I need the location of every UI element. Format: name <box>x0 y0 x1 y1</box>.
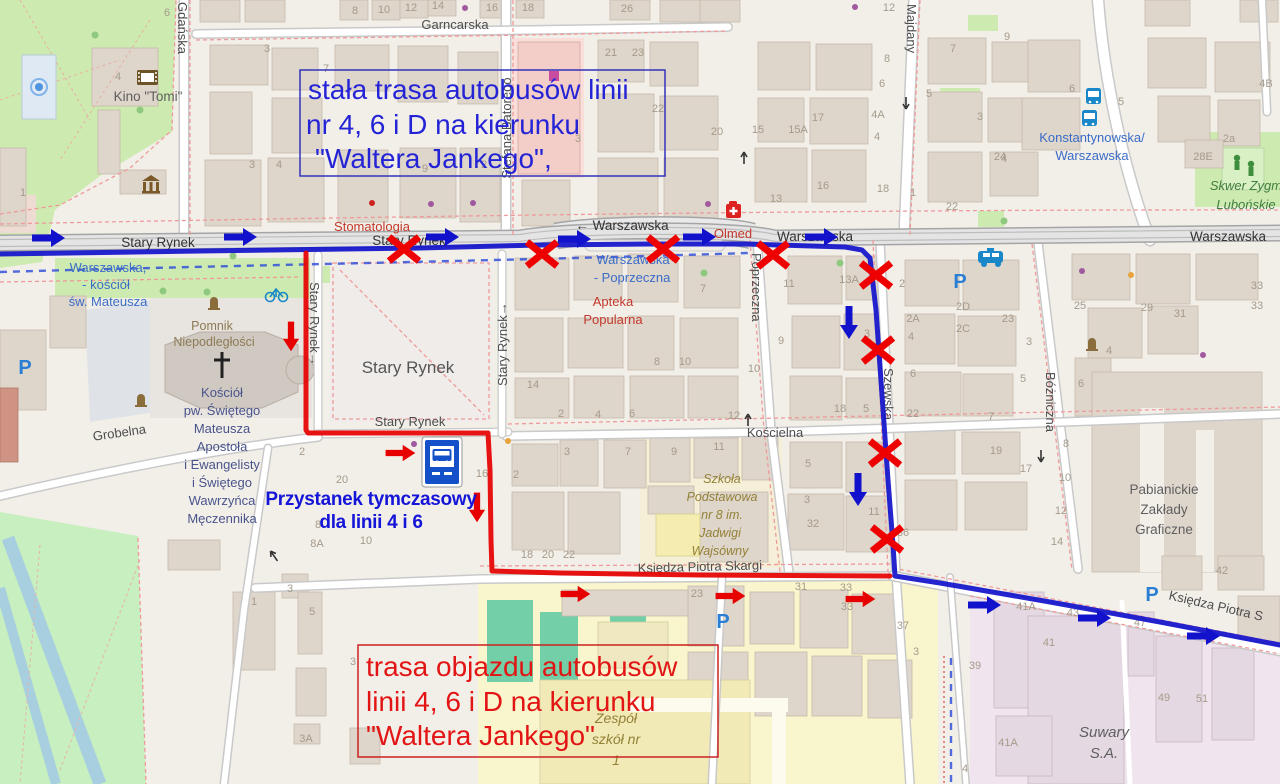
house-number: 25 <box>1074 300 1086 312</box>
parking-icon: P <box>1145 584 1158 606</box>
house-number: 22 <box>652 103 664 115</box>
house-number: 3 <box>350 656 356 668</box>
house-number: 33 <box>840 582 852 594</box>
house-number: 3 <box>1026 336 1032 348</box>
svg-text:linii 4, 6 i D na kierunku: linii 4, 6 i D na kierunku <box>366 686 655 717</box>
fountain-icon <box>22 55 56 119</box>
house-number: 2 <box>513 469 519 481</box>
svg-text:Męczennika: Męczennika <box>187 511 257 526</box>
house-number: 8 <box>352 5 358 17</box>
printing-works-building <box>1092 372 1262 572</box>
house-number: 7 <box>950 43 956 55</box>
fixed-route-note-line: stała trasa autobusów linii <box>308 74 629 105</box>
house-number: 9 <box>778 335 784 347</box>
house-number: 23 <box>1002 313 1014 325</box>
house-number: 26 <box>621 3 633 15</box>
poi-skwer: Skwer Zygm <box>1210 178 1280 193</box>
svg-text:Apostoła: Apostoła <box>197 439 248 454</box>
house-number: 5 <box>1118 96 1124 108</box>
house-number: 20 <box>711 126 723 138</box>
street-stary-rynek-south: Stary Rynek <box>375 414 446 429</box>
house-number: 33 <box>841 601 853 613</box>
parking-icon: P <box>18 357 31 379</box>
house-number: 2 <box>558 408 564 420</box>
house-number: 15A <box>788 124 808 136</box>
svg-text:"Waltera Jankego",: "Waltera Jankego", <box>315 143 552 174</box>
house-number: 18 <box>877 183 889 195</box>
house-number: 4 <box>874 131 880 143</box>
parking-icon: P <box>716 611 729 633</box>
svg-text:pw. Świętego: pw. Świętego <box>184 403 261 418</box>
house-number: 20 <box>542 549 554 561</box>
house-number: 18 <box>522 2 534 14</box>
house-number: 41 <box>1043 637 1055 649</box>
house-number: 6 <box>910 368 916 380</box>
house-number: 6 <box>1078 378 1084 390</box>
house-number: 3 <box>287 583 293 595</box>
svg-text:1: 1 <box>612 752 620 768</box>
poi-apteka: Apteka <box>593 294 634 309</box>
house-number: 29 <box>1141 302 1153 314</box>
house-number: 10 <box>378 4 390 16</box>
house-number: 22 <box>946 201 958 213</box>
map-canvas: Garncarska Gdańska Stefana Batorego Majd… <box>0 0 1280 784</box>
house-number: 23 <box>691 588 703 600</box>
svg-text:Zakłady: Zakłady <box>1140 502 1188 517</box>
house-number: 16 <box>486 2 498 14</box>
house-number: 42 <box>1216 565 1228 577</box>
svg-text:szkół nr: szkół nr <box>592 731 642 747</box>
street-warszawska-westbound: ← Warszawska <box>575 218 669 233</box>
house-number: 6 <box>629 408 635 420</box>
svg-text:dla linii 4 i 6: dla linii 4 i 6 <box>319 512 422 533</box>
house-number: 12 <box>1055 505 1067 517</box>
svg-text:nr 4, 6 i D na kierunku: nr 4, 6 i D na kierunku <box>306 109 580 140</box>
house-number: 1 <box>910 187 916 199</box>
house-number: 9 <box>671 446 677 458</box>
street-koscielna: Kościelna <box>747 425 804 440</box>
bus-stop-warszawska-kosciol: Warszawska, <box>70 260 147 275</box>
house-number: 3 <box>249 159 255 171</box>
svg-text:- Poprzeczna: - Poprzeczna <box>594 270 671 285</box>
house-number: 10 <box>679 356 691 368</box>
house-number: 5 <box>926 88 932 100</box>
street-stary-rynek-west-oneway: Stary Rynek→ <box>307 282 322 366</box>
bus-stop-konstantynowska: Konstantynowska/ <box>1039 130 1145 145</box>
street-majdany: Majdany <box>904 4 919 54</box>
house-number: 8A <box>310 538 324 550</box>
house-number: 3 <box>804 494 810 506</box>
house-number: 33 <box>1251 280 1263 292</box>
svg-text:- kościół: - kościół <box>82 277 130 292</box>
poi-kosciol: Kościół <box>201 385 243 400</box>
square-stary-rynek-label: Stary Rynek <box>362 358 455 377</box>
house-number: 15 <box>752 124 764 136</box>
svg-text:i Ewangelisty: i Ewangelisty <box>184 457 260 472</box>
house-number: 4 <box>908 331 914 343</box>
house-number: 22 <box>907 408 919 420</box>
svg-text:nr 8 im.: nr 8 im. <box>701 508 743 522</box>
house-number: 10 <box>1059 472 1071 484</box>
house-number: 12 <box>405 2 417 14</box>
house-number: 5 <box>805 458 811 470</box>
house-number: 18 <box>521 549 533 561</box>
house-number: 4A <box>871 109 885 121</box>
svg-text:Popularna: Popularna <box>583 312 643 327</box>
house-number: 28E <box>1193 151 1213 163</box>
house-number: 4 <box>962 763 968 775</box>
svg-text:Wajsówny: Wajsówny <box>692 544 749 558</box>
house-number: 7 <box>988 411 994 423</box>
house-number: 4B <box>1259 78 1272 90</box>
temporary-bus-stop-sign <box>422 437 462 487</box>
house-number: 33 <box>1251 300 1263 312</box>
svg-text:Graficzne: Graficzne <box>1135 522 1193 537</box>
poi-suwary: Suwary <box>1079 724 1131 741</box>
map-screenshot: Garncarska Gdańska Stefana Batorego Majd… <box>0 0 1280 784</box>
house-number: 51 <box>1196 693 1208 705</box>
bus-icon <box>1082 110 1097 126</box>
detour-note-line: trasa objazdu autobusów <box>366 651 678 682</box>
svg-text:Wawrzyńca: Wawrzyńca <box>189 493 256 508</box>
house-number: 4 <box>115 71 121 83</box>
house-number: 14 <box>432 0 444 12</box>
svg-text:Lubońskie: Lubońskie <box>1216 197 1275 212</box>
house-number: 1 <box>20 187 26 199</box>
house-number: 11 <box>713 441 724 453</box>
house-number: 3 <box>564 446 570 458</box>
svg-text:św. Mateusza: św. Mateusza <box>69 294 149 309</box>
house-number: 4 <box>595 409 601 421</box>
svg-text:i Świętego: i Świętego <box>192 475 252 490</box>
house-number: 12 <box>883 2 895 14</box>
house-number: 32 <box>807 518 819 530</box>
house-number: 31 <box>795 581 807 593</box>
house-number: 6 <box>879 78 885 90</box>
house-number: 49 <box>1158 692 1170 704</box>
house-number: 11 <box>783 278 794 290</box>
house-number: 5 <box>309 606 315 618</box>
house-number: 2D <box>956 301 970 313</box>
house-number: 2C <box>956 323 970 335</box>
house-number: 5 <box>1020 373 1026 385</box>
house-number: 21 <box>605 47 617 59</box>
svg-text:S.A.: S.A. <box>1090 745 1118 762</box>
house-number: 16 <box>817 180 829 192</box>
house-number: 41A <box>1016 601 1036 613</box>
house-number: 4 <box>276 159 282 171</box>
house-number: 41A <box>998 737 1018 749</box>
house-number: 6 <box>164 7 170 19</box>
house-number: 2a <box>1223 133 1236 145</box>
street-stary-rynek-road: Stary Rynek <box>121 235 195 250</box>
house-number: 3 <box>264 43 270 55</box>
house-number: 4 <box>1106 345 1112 357</box>
svg-text:Jadwigi: Jadwigi <box>698 526 742 540</box>
house-number: 31 <box>1174 308 1186 320</box>
house-number: 2 <box>899 278 905 290</box>
house-number: 17 <box>812 112 824 124</box>
house-number: 13 <box>770 193 782 205</box>
house-number: 10 <box>360 535 372 547</box>
poi-szkola-podstawowa-8: Szkoła <box>703 472 741 486</box>
street-gdanska: Gdańska <box>175 2 190 55</box>
svg-text:Podstawowa: Podstawowa <box>687 490 758 504</box>
cinema-icon <box>137 70 158 85</box>
house-number: 14 <box>527 379 539 391</box>
poi-kino-tomi: Kino "Tomi" <box>114 89 183 104</box>
poi-stomatologia: Stomatologia <box>334 219 411 234</box>
house-number: 13A <box>839 274 859 286</box>
house-number: 8 <box>884 53 890 65</box>
house-number: 18 <box>834 403 846 415</box>
house-number: 11 <box>868 506 879 518</box>
house-number: 16 <box>476 468 488 480</box>
house-number: 37 <box>897 620 909 632</box>
poi-pabianickie-zaklady-graficzne: Pabianickie <box>1129 482 1198 497</box>
poi-olmed: Olmed <box>714 226 752 241</box>
house-number: 7 <box>625 446 631 458</box>
house-number: 2A <box>906 313 920 325</box>
house-number: 17 <box>1020 463 1032 475</box>
house-number: 8 <box>1063 438 1069 450</box>
house-number: 6 <box>1069 83 1075 95</box>
svg-text:Mateusza: Mateusza <box>194 421 251 436</box>
house-number: 9 <box>1004 31 1010 43</box>
house-number: 3A <box>299 733 313 745</box>
house-number: 1 <box>251 596 257 608</box>
house-number: 19 <box>990 445 1002 457</box>
house-number: 10 <box>748 363 760 375</box>
temp-stop-caption: Przystanek tymczasowy <box>265 489 477 510</box>
bus-icon <box>1086 88 1101 104</box>
svg-text:"Waltera Jankego": "Waltera Jankego" <box>366 720 595 751</box>
street-warszawska: Warszawska <box>1190 229 1267 244</box>
house-number: 8 <box>654 356 660 368</box>
poi-pomnik: Pomnik <box>191 319 233 333</box>
house-number: 4 <box>1001 153 1007 165</box>
house-number: 3 <box>913 646 919 658</box>
svg-text:Warszawska: Warszawska <box>1055 148 1129 163</box>
house-number: 7 <box>700 283 706 295</box>
street-stary-rynek-east-oneway: Stary Rynek→ <box>495 302 510 386</box>
street-garncarska: Garncarska <box>421 17 489 32</box>
house-number: 20 <box>336 474 348 486</box>
house-number: 39 <box>969 660 981 672</box>
house-number: 2 <box>299 446 305 458</box>
house-number: 3 <box>977 111 983 123</box>
house-number: 23 <box>632 47 644 59</box>
house-number: 14 <box>1051 536 1063 548</box>
street-bozniczna: Bóżniczna <box>1043 372 1058 433</box>
house-number: 22 <box>563 549 575 561</box>
parking-icon: P <box>953 271 966 293</box>
house-number: 5 <box>863 403 869 415</box>
svg-text:Niepodległości: Niepodległości <box>173 335 254 349</box>
house-number: 12 <box>728 410 740 422</box>
